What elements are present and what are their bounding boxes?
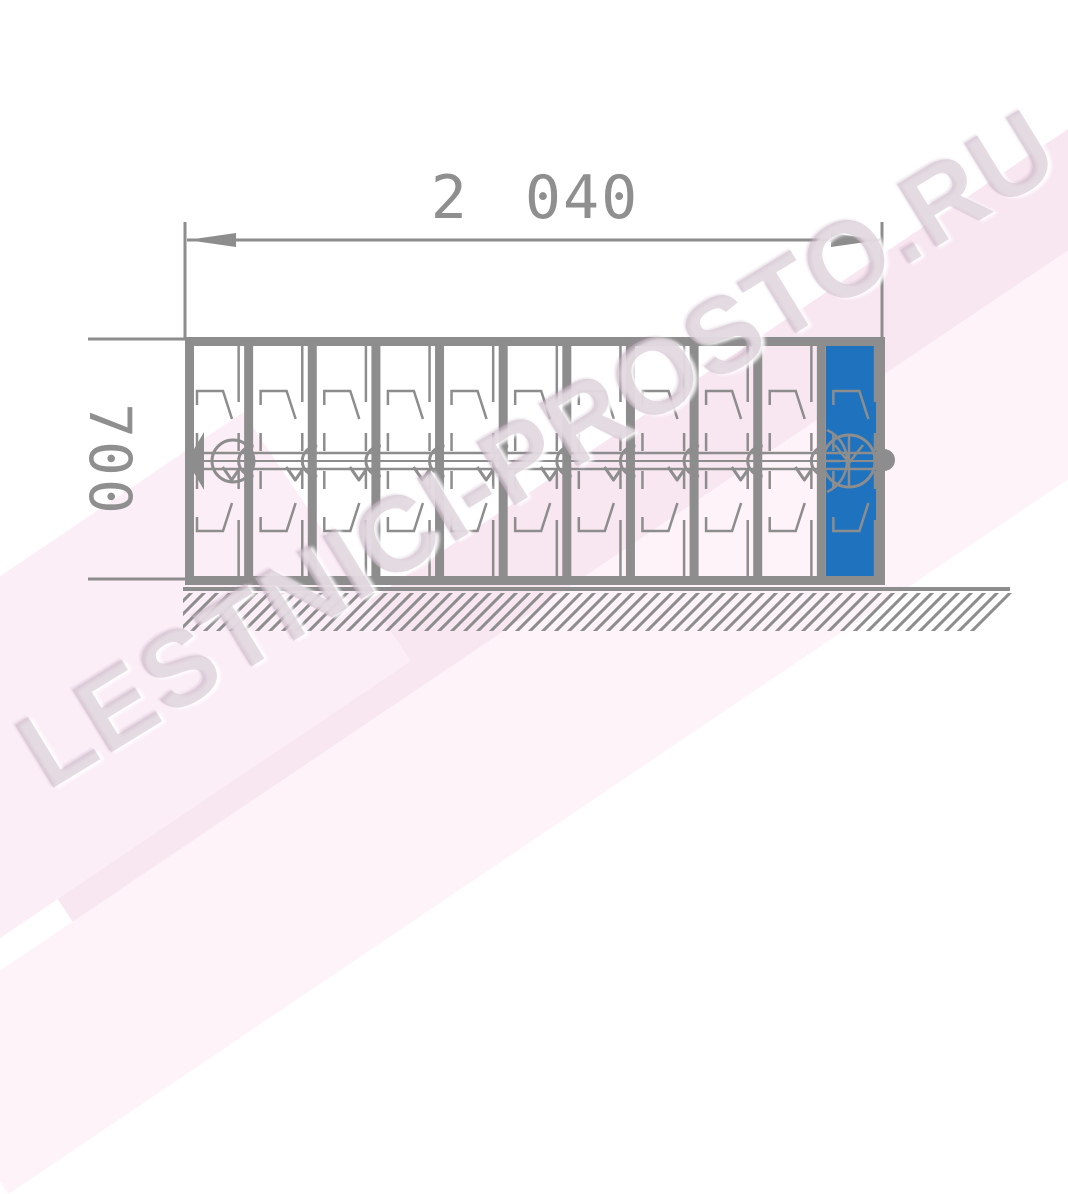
- technical-drawing: [0, 0, 1068, 800]
- dimension-lines: [88, 222, 882, 579]
- ground-hatching: [150, 589, 1068, 634]
- dimension-width-label: 2 040: [185, 168, 885, 228]
- dimension-height-label: 700: [81, 403, 139, 517]
- middle-rail: [194, 453, 876, 469]
